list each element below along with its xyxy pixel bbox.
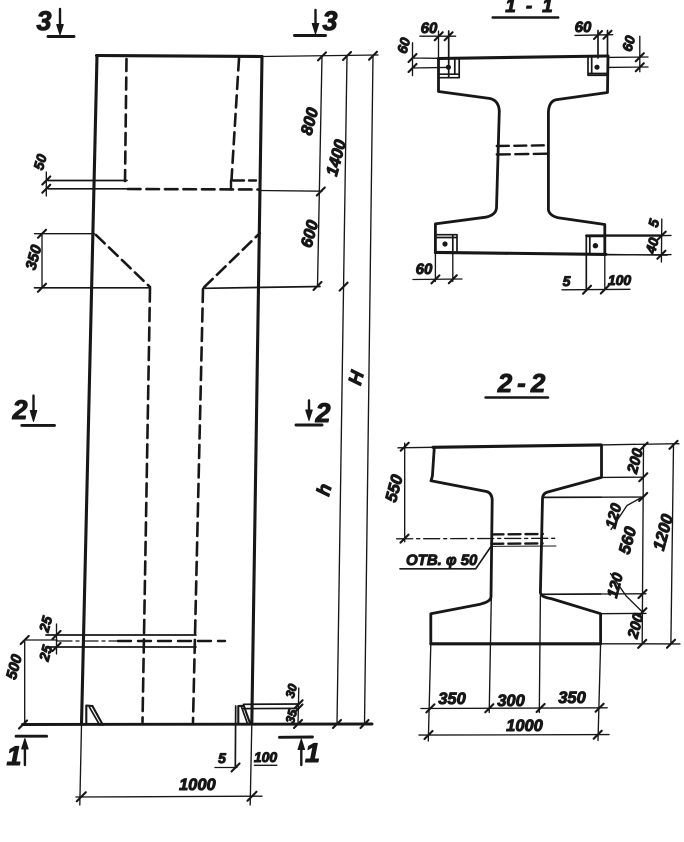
svg-text:60: 60 (575, 19, 592, 36)
svg-text:1: 1 (305, 738, 320, 768)
svg-text:60: 60 (416, 261, 433, 278)
svg-text:5: 5 (563, 273, 571, 289)
svg-text:2: 2 (314, 398, 330, 428)
svg-text:2-2: 2-2 (497, 368, 551, 398)
svg-text:3: 3 (322, 6, 337, 36)
svg-text:2: 2 (11, 395, 27, 425)
svg-text:300: 300 (497, 692, 525, 710)
svg-text:350: 350 (558, 689, 586, 707)
svg-text:1000: 1000 (179, 776, 217, 794)
svg-text:5: 5 (218, 750, 226, 766)
svg-text:100: 100 (608, 272, 632, 288)
svg-text:350: 350 (438, 690, 466, 708)
svg-text:ОТВ. φ 50: ОТВ. φ 50 (406, 552, 478, 569)
svg-text:60: 60 (421, 20, 438, 37)
svg-text:3: 3 (36, 6, 51, 36)
svg-text:1000: 1000 (506, 717, 544, 735)
svg-text:1: 1 (6, 741, 21, 771)
svg-text:1-1: 1-1 (505, 0, 562, 17)
svg-text:100: 100 (254, 749, 278, 765)
